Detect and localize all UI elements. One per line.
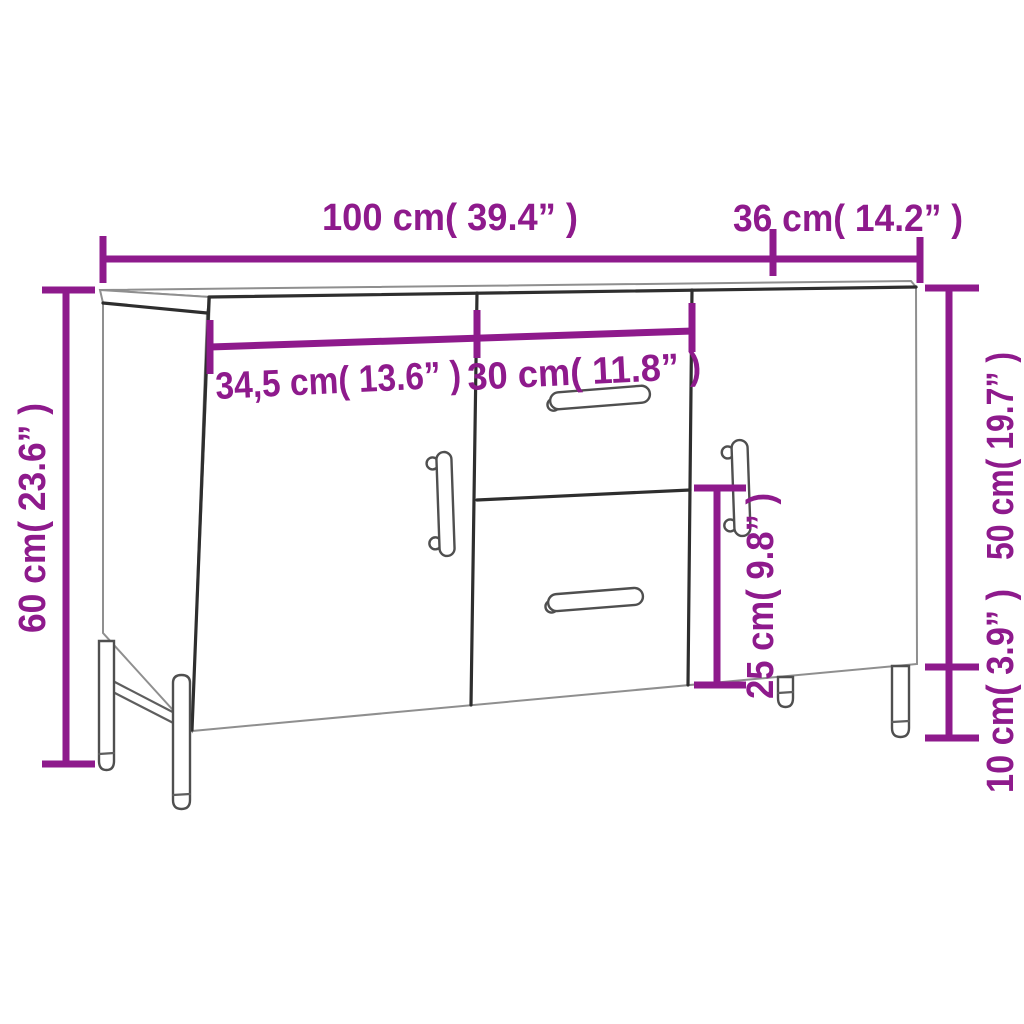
dim-label-overall-width: 100 cm( 39.4” ) xyxy=(322,197,578,239)
diagram-canvas: 100 cm( 39.4” ) 36 cm( 14.2” ) 34,5 cm( … xyxy=(0,0,1024,1024)
dimension-diagram: 100 cm( 39.4” ) 36 cm( 14.2” ) 34,5 cm( … xyxy=(0,0,1024,1024)
leg-front-right-foot-line xyxy=(892,721,909,722)
dim-label-depth: 36 cm( 14.2” ) xyxy=(733,198,963,240)
leg-back-left xyxy=(99,641,114,770)
cabinet-left-panel xyxy=(103,303,207,731)
dim-label-drawer-height: 25 cm( 9.8” ) xyxy=(740,493,782,699)
dim-label-carcass-height: 50 cm( 19.7” ) xyxy=(980,352,1022,560)
dim-label-leg-height: 10 cm( 3.9” ) xyxy=(980,589,1022,793)
handle-bar xyxy=(436,452,455,556)
leg-front-left-foot-line xyxy=(173,794,190,795)
dim-label-overall-height: 60 cm( 23.6” ) xyxy=(12,403,54,633)
leg-back-left-foot-line xyxy=(99,753,114,754)
leg-front-left xyxy=(173,675,190,809)
leg-front-right xyxy=(892,666,909,737)
